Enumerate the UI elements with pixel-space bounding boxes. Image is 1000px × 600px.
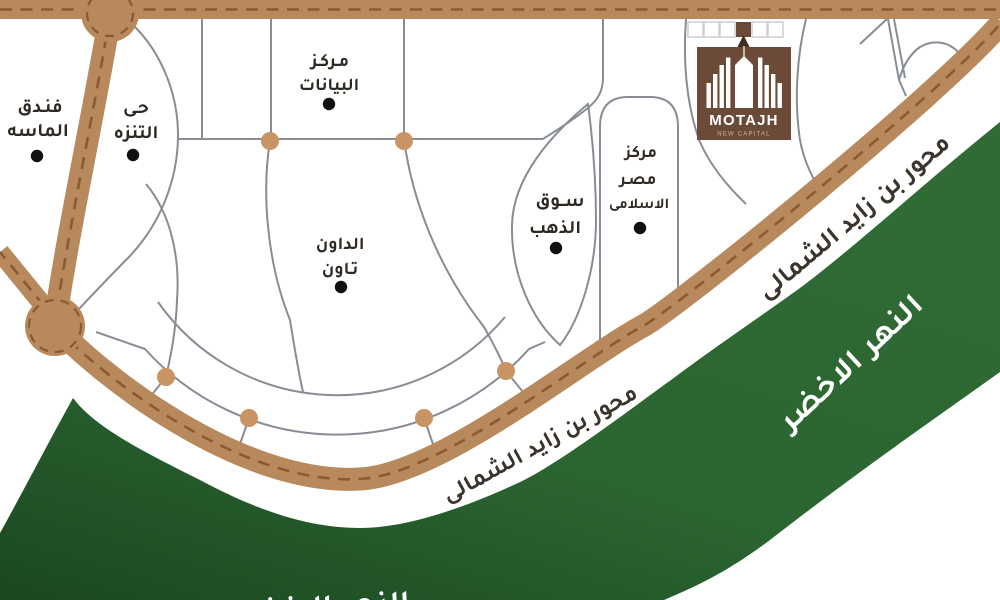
svg-text:MOTAJH: MOTAJH — [709, 112, 778, 129]
svg-text:NEW CAPITAL: NEW CAPITAL — [717, 132, 770, 138]
